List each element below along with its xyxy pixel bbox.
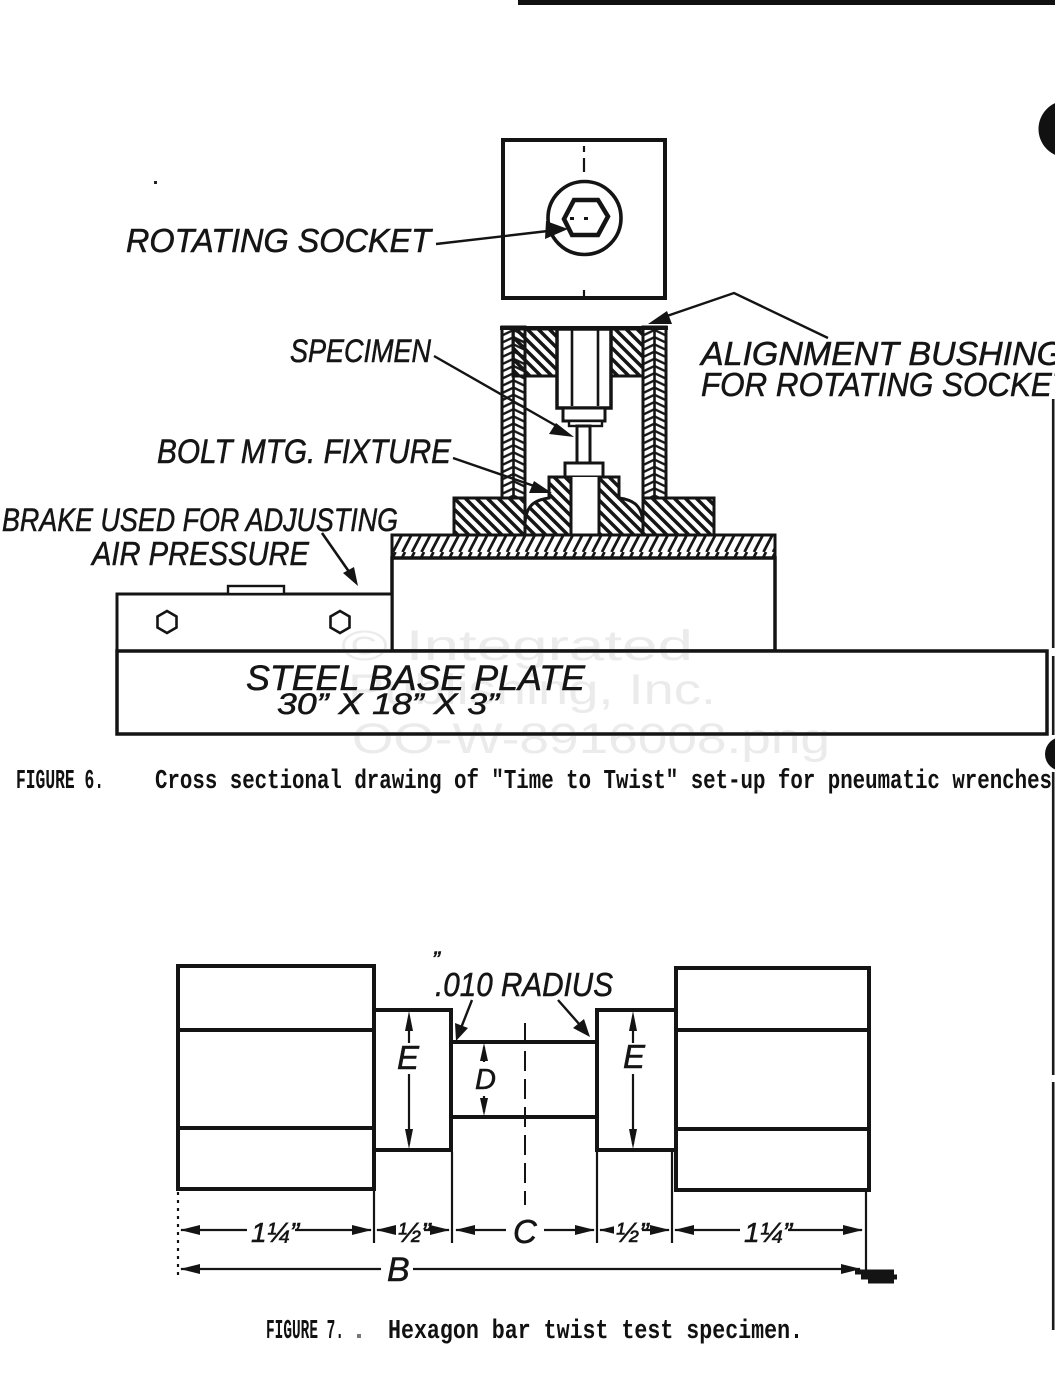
svg-text:OO-W-8916008.png: OO-W-8916008.png [352, 715, 830, 763]
svg-text:FIGURE 6.: FIGURE 6. [16, 767, 104, 797]
svg-text:FOR ROTATING SOCKET: FOR ROTATING SOCKET [701, 366, 1055, 403]
svg-text:1¼”: 1¼” [251, 1217, 301, 1248]
svg-text:BRAKE USED FOR ADJUSTING: BRAKE USED FOR ADJUSTING [2, 502, 398, 538]
svg-text:Hexagon bar twist test specime: Hexagon bar twist test specimen. [388, 1317, 803, 1347]
svg-text:”: ” [432, 947, 441, 974]
svg-text:Publishing, Inc.: Publishing, Inc. [348, 666, 716, 714]
svg-text:.010 RADIUS: .010 RADIUS [435, 966, 613, 1003]
svg-text:FIGURE 7.: FIGURE 7. [266, 1317, 344, 1347]
svg-text:½”: ½” [398, 1217, 432, 1248]
svg-text:AIR PRESSURE: AIR PRESSURE [90, 535, 310, 572]
svg-text:BOLT MTG. FIXTURE: BOLT MTG. FIXTURE [157, 433, 451, 471]
svg-text:Cross sectional drawing of "Ti: Cross sectional drawing of "Time to Twis… [155, 767, 1052, 797]
svg-text:ROTATING SOCKET: ROTATING SOCKET [126, 222, 434, 259]
svg-text:E: E [397, 1039, 420, 1076]
svg-text:© Integrated: © Integrated [341, 622, 693, 670]
svg-text:B: B [387, 1251, 410, 1289]
svg-text:D: D [475, 1064, 496, 1096]
svg-text:C: C [513, 1213, 538, 1250]
svg-text:SPECIMEN: SPECIMEN [290, 333, 432, 369]
svg-text:1¼”: 1¼” [744, 1217, 794, 1248]
svg-text:E: E [623, 1038, 646, 1075]
svg-text:½”: ½” [616, 1217, 650, 1248]
